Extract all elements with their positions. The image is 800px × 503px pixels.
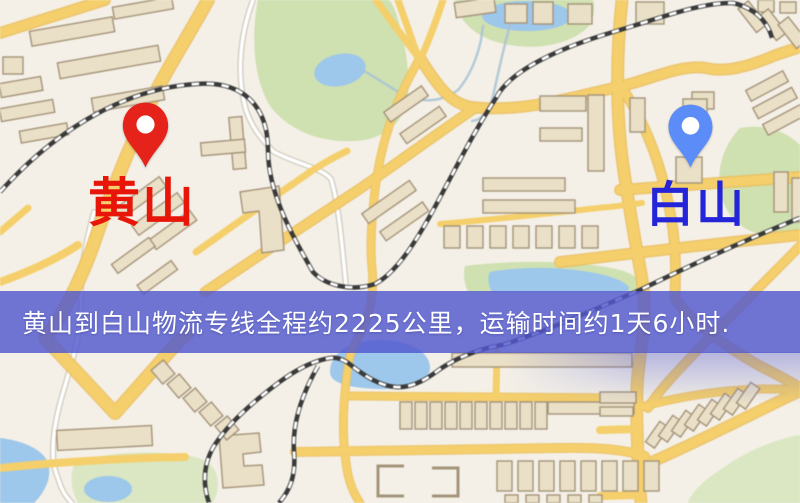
banner-fade-overlay bbox=[505, 352, 800, 404]
destination-marker bbox=[665, 103, 716, 169]
map-canvas bbox=[0, 0, 800, 503]
route-info-text: 黄山到白山物流专线全程约2225公里，运输时间约1天6小时. bbox=[22, 304, 730, 340]
origin-label: 黄山 bbox=[88, 178, 196, 230]
route-info-banner: 黄山到白山物流专线全程约2225公里，运输时间约1天6小时. bbox=[0, 291, 800, 353]
origin-marker bbox=[119, 101, 172, 169]
logistics-route-map: 黄山 白山 黄山到白山物流专线全程约2225公里，运输时间约1天6小时. bbox=[0, 0, 800, 503]
destination-label: 白山 bbox=[646, 181, 746, 229]
red-map-pin-icon bbox=[119, 101, 172, 169]
blue-map-pin-icon bbox=[665, 103, 716, 169]
